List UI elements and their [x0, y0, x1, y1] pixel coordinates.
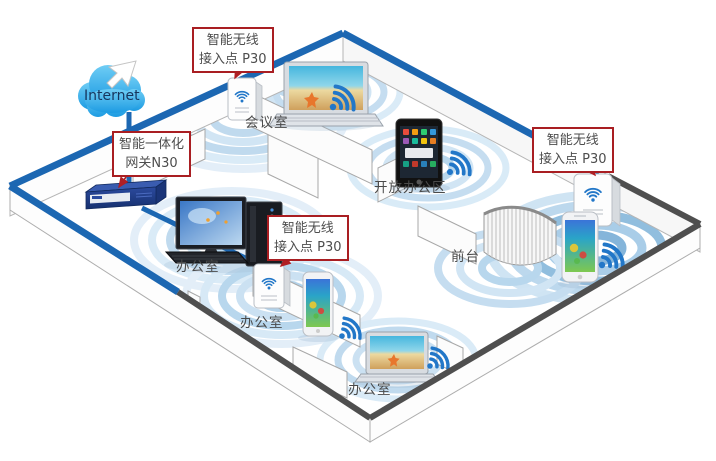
- label-ap-line1: 智能无线: [539, 131, 607, 150]
- room-label-reception: 前台: [451, 245, 480, 265]
- room-label-open-office: 开放办公区: [374, 176, 447, 196]
- smartphone-icon: [558, 212, 602, 289]
- label-ap-meeting: 智能无线 接入点 P30: [192, 27, 274, 73]
- label-ap-reception: 智能无线 接入点 P30: [532, 127, 614, 173]
- room-label-office-middle: 办公室: [240, 311, 284, 331]
- network-topology-diagram: Internet 智能无线 接入点 P30 智能一体化 网关N30 智能无线 接…: [0, 0, 716, 461]
- label-gateway-line2: 网关N30: [119, 154, 184, 173]
- room-label-office-bottom: 办公室: [348, 378, 392, 398]
- smartphone-icon: [298, 272, 338, 342]
- label-ap-line2: 接入点 P30: [199, 50, 267, 69]
- label-ap-line1: 智能无线: [274, 219, 342, 238]
- label-ap-line2: 接入点 P30: [539, 150, 607, 169]
- label-gateway-line1: 智能一体化: [119, 135, 184, 154]
- internet-label: Internet: [84, 88, 140, 104]
- access-point-icon: [254, 264, 290, 308]
- label-ap-middle: 智能无线 接入点 P30: [267, 215, 349, 261]
- label-ap-line2: 接入点 P30: [274, 238, 342, 257]
- room-label-office-left: 办公室: [176, 255, 220, 275]
- label-ap-line1: 智能无线: [199, 31, 267, 50]
- room-label-meeting: 会议室: [245, 111, 289, 131]
- label-gateway: 智能一体化 网关N30: [112, 131, 191, 177]
